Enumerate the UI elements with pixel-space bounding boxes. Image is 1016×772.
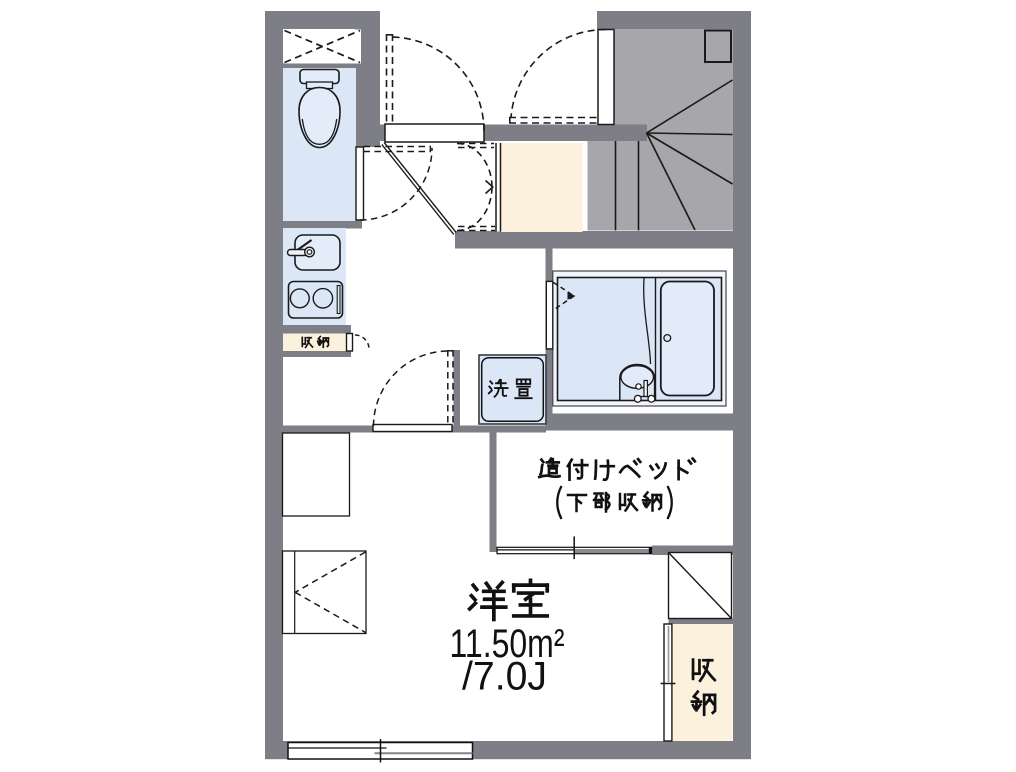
svg-text:/7.0J: /7.0J — [462, 655, 547, 699]
